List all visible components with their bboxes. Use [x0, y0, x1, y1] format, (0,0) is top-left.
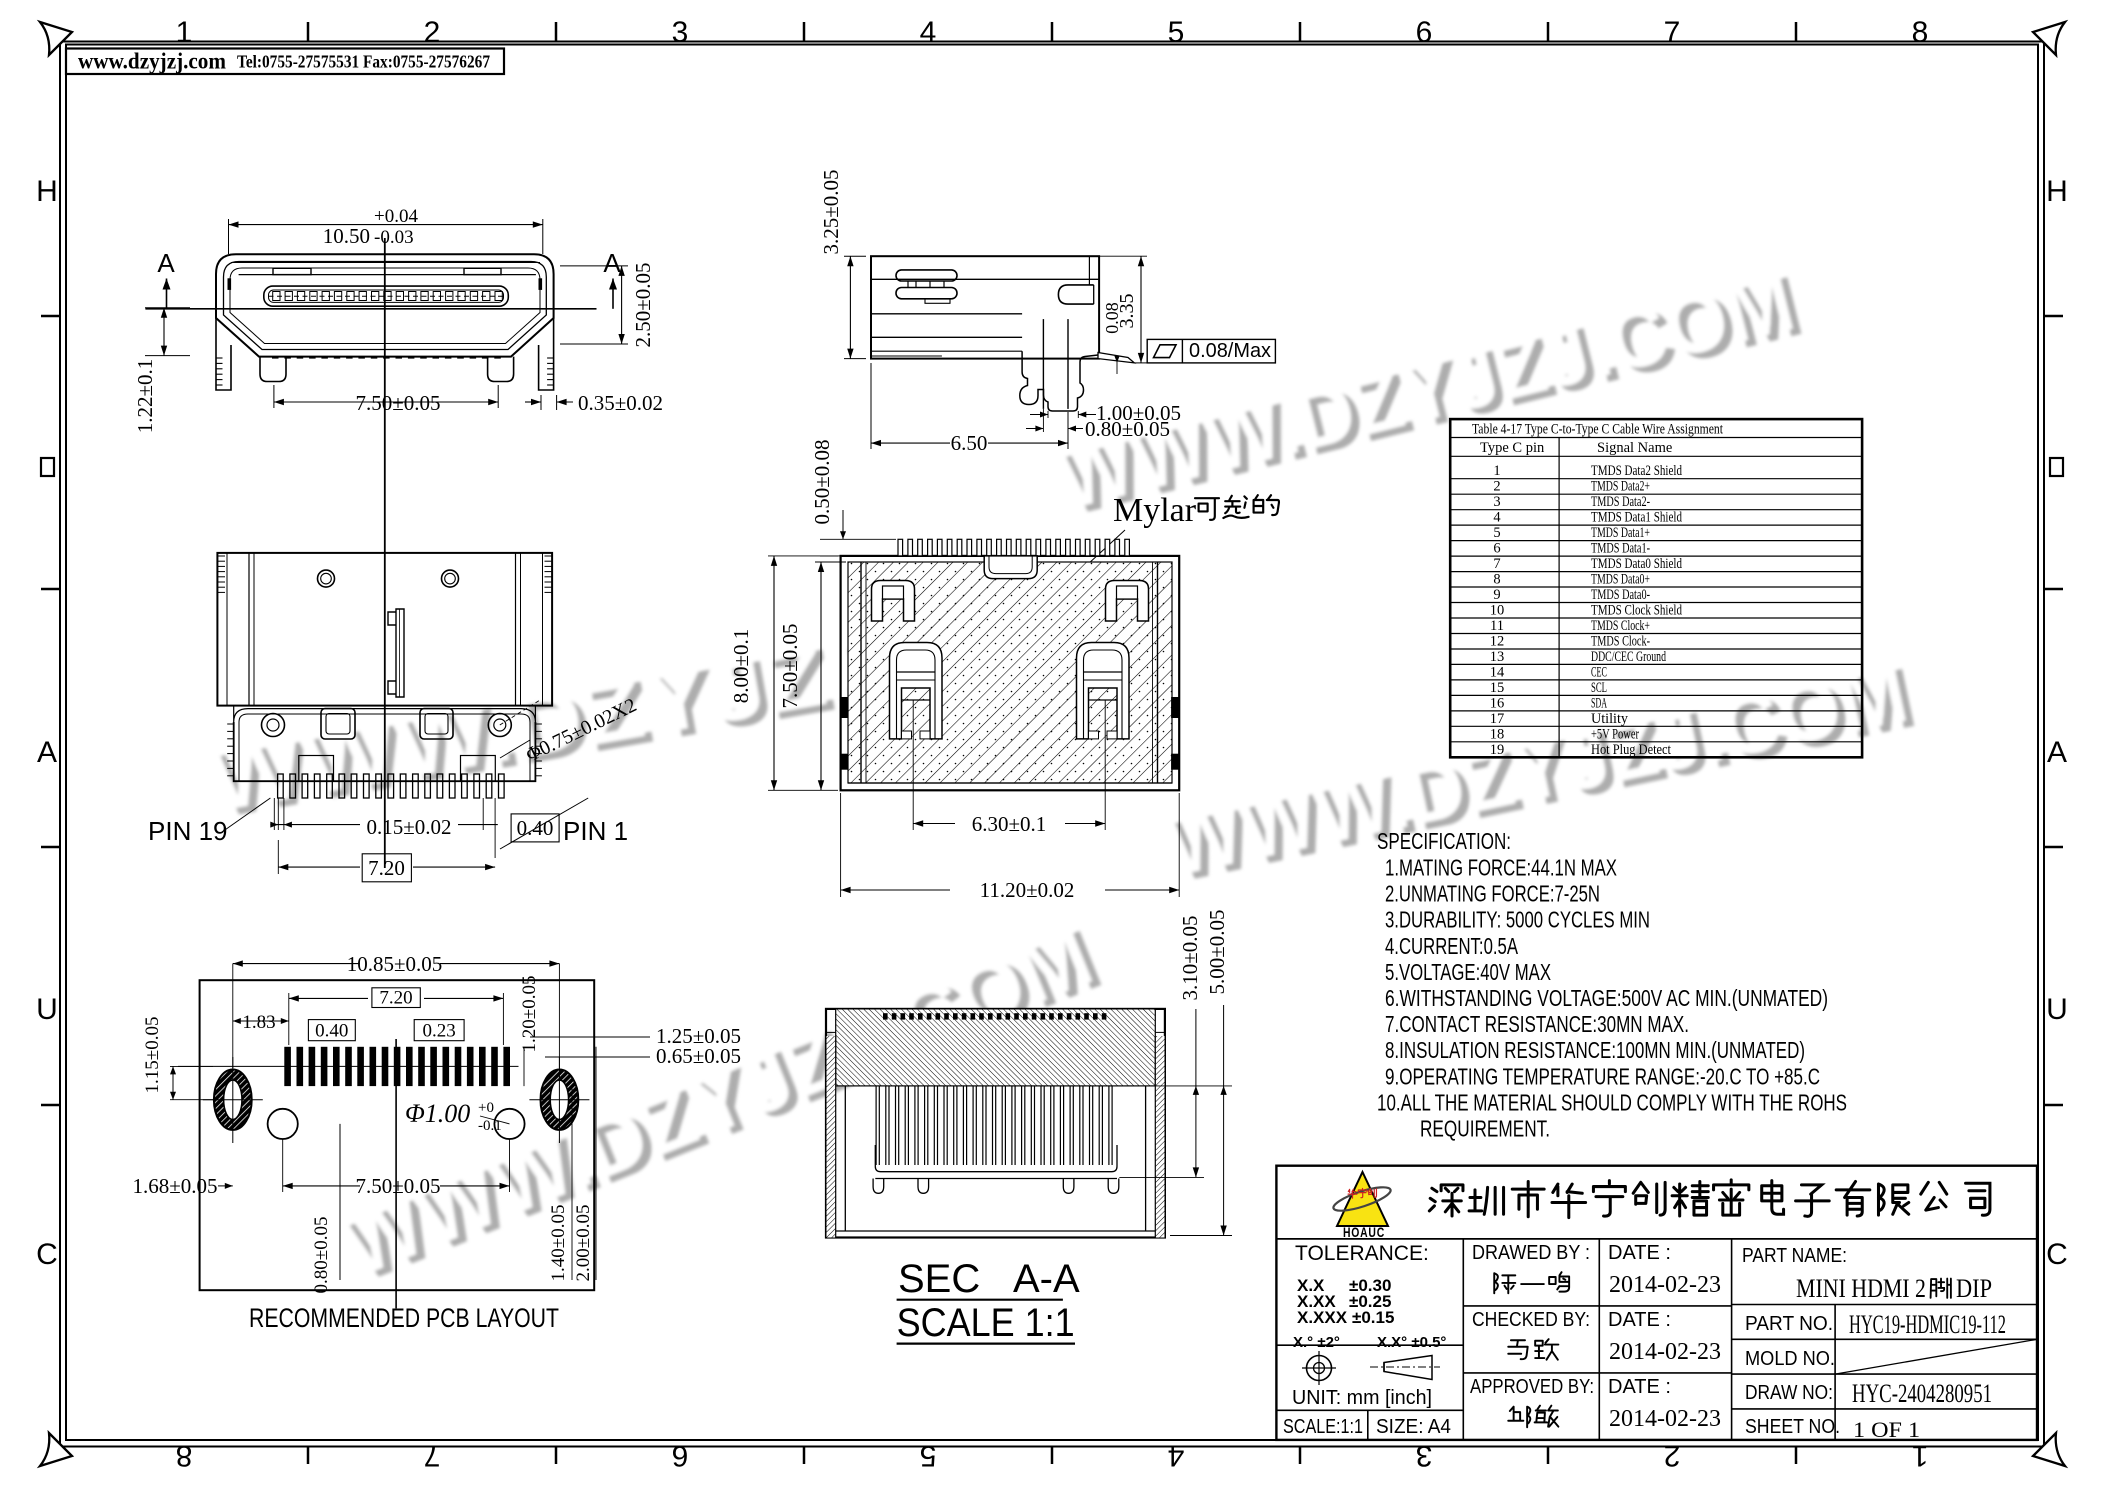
svg-text:CEC: CEC	[1591, 664, 1607, 680]
svg-text:14: 14	[1490, 664, 1505, 680]
svg-text:9: 9	[1493, 587, 1500, 603]
svg-text:TMDS Clock-: TMDS Clock-	[1591, 634, 1650, 650]
svg-text:10.ALL THE MATERIAL SHOULD COM: 10.ALL THE MATERIAL SHOULD COMPLY WITH T…	[1377, 1089, 1847, 1115]
svg-text:Type C pin: Type C pin	[1480, 440, 1545, 456]
svg-text:8.INSULATION RESISTANCE:100MN: 8.INSULATION RESISTANCE:100MN MIN.(UNMAT…	[1385, 1037, 1805, 1063]
svg-text:0.50±0.08: 0.50±0.08	[810, 439, 834, 524]
svg-text:15: 15	[1490, 680, 1505, 696]
svg-text:0.40: 0.40	[517, 816, 554, 840]
svg-text:1: 1	[176, 16, 193, 49]
svg-text:3: 3	[1416, 1439, 1433, 1472]
svg-text:3.25±0.05: 3.25±0.05	[819, 169, 843, 254]
svg-text:Signal Name: Signal Name	[1597, 440, 1672, 456]
svg-text:3: 3	[672, 16, 689, 49]
svg-text:5: 5	[1493, 525, 1500, 541]
svg-text:0.80±0.05: 0.80±0.05	[311, 1217, 332, 1294]
svg-text:19: 19	[1490, 742, 1505, 758]
svg-text:2: 2	[424, 16, 441, 49]
svg-text:1.22±0.1: 1.22±0.1	[133, 359, 157, 434]
svg-text:REQUIREMENT.: REQUIREMENT.	[1420, 1116, 1550, 1142]
svg-text:SCALE 1:1: SCALE 1:1	[897, 1301, 1075, 1345]
svg-text:7.50±0.05: 7.50±0.05	[355, 391, 440, 415]
svg-text:SPECIFICATION:: SPECIFICATION:	[1377, 828, 1511, 854]
svg-text:Φ1.00: Φ1.00	[405, 1099, 470, 1128]
svg-text:1.83: 1.83	[242, 1012, 275, 1033]
svg-text:SHEET NO.: SHEET NO.	[1745, 1416, 1840, 1438]
svg-text:A: A	[603, 248, 621, 278]
svg-text:TMDS Clock+: TMDS Clock+	[1591, 618, 1650, 634]
svg-text:A: A	[37, 736, 57, 769]
svg-text:TMDS Data1-: TMDS Data1-	[1591, 541, 1650, 557]
svg-text:TMDS Data2-: TMDS Data2-	[1591, 494, 1650, 510]
svg-text:6: 6	[672, 1439, 689, 1472]
svg-text:Table 4-17 Type C-to-Type C Ca: Table 4-17 Type C-to-Type C Cable Wire A…	[1472, 422, 1724, 438]
svg-text:TMDS Data1 Shield: TMDS Data1 Shield	[1591, 510, 1683, 526]
svg-text:TMDS Data0 Shield: TMDS Data0 Shield	[1591, 556, 1683, 572]
svg-text:HOAUC: HOAUC	[1343, 1225, 1385, 1240]
svg-text:DRAWED BY :: DRAWED BY :	[1472, 1242, 1590, 1264]
svg-text:0.65±0.05: 0.65±0.05	[656, 1044, 741, 1068]
svg-text:PIN 19: PIN 19	[148, 816, 228, 846]
svg-text:3.35: 3.35	[1116, 294, 1138, 329]
svg-text:0.40: 0.40	[315, 1021, 348, 1042]
svg-text:3.DURABILITY: 5000 CYCLES MIN: 3.DURABILITY: 5000 CYCLES MIN	[1385, 907, 1650, 933]
svg-text:6: 6	[1493, 541, 1500, 557]
svg-text:+0: +0	[478, 1100, 494, 1116]
svg-text:RECOMMENDED PCB LAYOUT: RECOMMENDED PCB LAYOUT	[249, 1303, 559, 1333]
svg-text:DATE :: DATE :	[1608, 1309, 1671, 1331]
svg-text:1: 1	[1912, 1439, 1929, 1472]
svg-text:-0.03: -0.03	[374, 227, 414, 248]
svg-text:6.30±0.1: 6.30±0.1	[972, 812, 1047, 836]
svg-text:TOLERANCE:: TOLERANCE:	[1295, 1242, 1429, 1265]
svg-text:A: A	[2047, 736, 2067, 769]
svg-text:TMDS Data1+: TMDS Data1+	[1591, 525, 1650, 541]
svg-text:UNIT: mm [inch]: UNIT: mm [inch]	[1292, 1387, 1432, 1409]
svg-text:4: 4	[1493, 510, 1501, 526]
svg-text:2.00±0.05: 2.00±0.05	[573, 1205, 594, 1282]
svg-text:TMDS Data2+: TMDS Data2+	[1591, 479, 1650, 495]
svg-text:DIP: DIP	[1956, 1274, 1992, 1303]
svg-text:1.40±0.05: 1.40±0.05	[548, 1205, 569, 1282]
svg-text:X.° ±2°: X.° ±2°	[1293, 1334, 1340, 1351]
svg-text:+0.04: +0.04	[374, 206, 418, 227]
svg-text:4: 4	[920, 16, 937, 49]
svg-text:APPROVED BY:: APPROVED BY:	[1470, 1376, 1594, 1398]
svg-text:DDC/CEC Ground: DDC/CEC Ground	[1591, 649, 1666, 665]
svg-text:10.50: 10.50	[323, 224, 370, 248]
svg-text:11: 11	[1490, 618, 1504, 634]
svg-text:SIZE: A4: SIZE: A4	[1376, 1416, 1451, 1438]
svg-text:H: H	[36, 175, 58, 208]
svg-text:1.15±0.05: 1.15±0.05	[142, 1017, 163, 1094]
svg-text:2014-02-23: 2014-02-23	[1609, 1272, 1721, 1298]
svg-text:12: 12	[1490, 634, 1505, 650]
svg-text:13: 13	[1490, 649, 1505, 665]
svg-text:0.23: 0.23	[422, 1021, 455, 1042]
svg-text:U: U	[2046, 993, 2068, 1026]
svg-text:2.50±0.05: 2.50±0.05	[631, 262, 655, 347]
svg-text:DATE :: DATE :	[1608, 1242, 1671, 1264]
svg-text:U: U	[36, 993, 58, 1026]
svg-text:6.WITHSTANDING VOLTAGE:500V AC: 6.WITHSTANDING VOLTAGE:500V AC MIN.(UNMA…	[1385, 985, 1828, 1011]
svg-text:10: 10	[1490, 603, 1505, 619]
svg-text:5: 5	[920, 1439, 937, 1472]
svg-text:H: H	[2046, 175, 2068, 208]
svg-text:2014-02-23: 2014-02-23	[1609, 1406, 1721, 1432]
svg-text:4.CURRENT:0.5A: 4.CURRENT:0.5A	[1385, 933, 1518, 959]
svg-text:7.CONTACT RESISTANCE:30MN MAX.: 7.CONTACT RESISTANCE:30MN MAX.	[1385, 1011, 1689, 1037]
svg-text:www.dzyjzj.com: www.dzyjzj.com	[78, 49, 226, 74]
svg-text:1.68±0.05: 1.68±0.05	[132, 1174, 217, 1198]
svg-text:CHECKED BY:: CHECKED BY:	[1472, 1309, 1590, 1331]
svg-text:2: 2	[1664, 1439, 1681, 1472]
svg-text:1: 1	[1493, 463, 1500, 479]
svg-text:0.08/Max: 0.08/Max	[1189, 340, 1271, 362]
svg-text:DRAW NO:: DRAW NO:	[1745, 1382, 1833, 1404]
svg-text:-0.1: -0.1	[478, 1118, 502, 1134]
svg-text:7: 7	[1493, 556, 1500, 572]
svg-text:A-A: A-A	[1013, 1257, 1080, 1301]
svg-text:7: 7	[1664, 16, 1681, 49]
svg-text:2: 2	[1493, 479, 1500, 495]
svg-text:2.UNMATING FORCE:7-25N: 2.UNMATING FORCE:7-25N	[1385, 881, 1600, 907]
svg-text:8: 8	[176, 1439, 193, 1472]
svg-text:Utility: Utility	[1591, 711, 1629, 727]
svg-text:7.20: 7.20	[368, 856, 405, 880]
svg-text:±0.15: ±0.15	[1352, 1308, 1394, 1327]
svg-text:PART NAME:: PART NAME:	[1742, 1245, 1847, 1267]
svg-text:HYC19-HDMIC19-112: HYC19-HDMIC19-112	[1849, 1310, 2006, 1339]
svg-text:DATE :: DATE :	[1608, 1376, 1671, 1398]
svg-text:1 OF 1: 1 OF 1	[1853, 1417, 1920, 1442]
svg-text:MOLD NO.: MOLD NO.	[1745, 1348, 1835, 1370]
svg-text:0.80±0.05: 0.80±0.05	[1085, 417, 1170, 441]
svg-text:3: 3	[1493, 494, 1500, 510]
svg-text:7.50±0.05: 7.50±0.05	[778, 623, 802, 708]
svg-text:10.85±0.05: 10.85±0.05	[347, 952, 443, 976]
svg-text:PART NO.: PART NO.	[1745, 1313, 1833, 1335]
svg-text:C: C	[2046, 1238, 2068, 1271]
svg-text:SCALE:1:1: SCALE:1:1	[1283, 1416, 1363, 1438]
svg-text:X.XXX: X.XXX	[1297, 1308, 1348, 1327]
svg-text:SCL: SCL	[1591, 680, 1607, 696]
svg-text:5.VOLTAGE:40V MAX: 5.VOLTAGE:40V MAX	[1385, 959, 1551, 985]
svg-text:8: 8	[1912, 16, 1929, 49]
svg-text:A: A	[157, 248, 175, 278]
svg-text:MINI HDMI 2: MINI HDMI 2	[1796, 1274, 1926, 1303]
svg-text:0.35±0.02: 0.35±0.02	[578, 391, 663, 415]
svg-text:11.20±0.02: 11.20±0.02	[980, 878, 1075, 902]
svg-text:5.00±0.05: 5.00±0.05	[1205, 909, 1229, 994]
svg-text:1.20±0.05: 1.20±0.05	[519, 976, 540, 1053]
svg-text:6: 6	[1416, 16, 1433, 49]
svg-text:16: 16	[1490, 695, 1505, 711]
svg-text:5: 5	[1168, 16, 1185, 49]
svg-text:2014-02-23: 2014-02-23	[1609, 1339, 1721, 1365]
svg-text:6.50: 6.50	[951, 431, 988, 455]
svg-text:8: 8	[1493, 572, 1500, 588]
svg-text:4: 4	[1168, 1439, 1185, 1472]
svg-text:TMDS Data0+: TMDS Data0+	[1591, 572, 1650, 588]
svg-text:0.15±0.02: 0.15±0.02	[366, 815, 451, 839]
svg-text:PIN 1: PIN 1	[563, 816, 628, 846]
svg-text:TMDS Data2 Shield: TMDS Data2 Shield	[1591, 463, 1683, 479]
svg-text:17: 17	[1490, 711, 1505, 727]
svg-text:3.10±0.05: 3.10±0.05	[1178, 915, 1202, 1000]
svg-text:C: C	[36, 1238, 58, 1271]
svg-text:18: 18	[1490, 726, 1505, 742]
svg-text:SEC: SEC	[898, 1257, 980, 1301]
svg-text:+5V Power: +5V Power	[1591, 726, 1639, 742]
svg-text:Hot Plug Detect: Hot Plug Detect	[1591, 742, 1671, 758]
svg-text:7.20: 7.20	[379, 988, 412, 1009]
svg-text:SDA: SDA	[1591, 695, 1607, 711]
svg-text:TMDS Data0-: TMDS Data0-	[1591, 587, 1650, 603]
svg-text:Mylar: Mylar	[1113, 492, 1197, 529]
svg-text:7.50±0.05: 7.50±0.05	[355, 1174, 440, 1198]
svg-text:1.MATING FORCE:44.1N MAX: 1.MATING FORCE:44.1N MAX	[1385, 855, 1617, 881]
svg-text:X.X° ±0.5°: X.X° ±0.5°	[1377, 1334, 1446, 1351]
svg-text:7: 7	[424, 1439, 441, 1472]
svg-text:8.00±0.1: 8.00±0.1	[729, 629, 753, 704]
svg-text:9.OPERATING TEMPERATURE RANGE:: 9.OPERATING TEMPERATURE RANGE:-20.C TO +…	[1385, 1063, 1820, 1089]
svg-text:HYC-2404280951: HYC-2404280951	[1852, 1379, 1992, 1408]
svg-text:Tel:0755-27575531 Fax:0755-27: Tel:0755-27575531 Fax:0755-27576267	[237, 52, 490, 72]
svg-text:TMDS Clock Shield: TMDS Clock Shield	[1591, 603, 1683, 619]
